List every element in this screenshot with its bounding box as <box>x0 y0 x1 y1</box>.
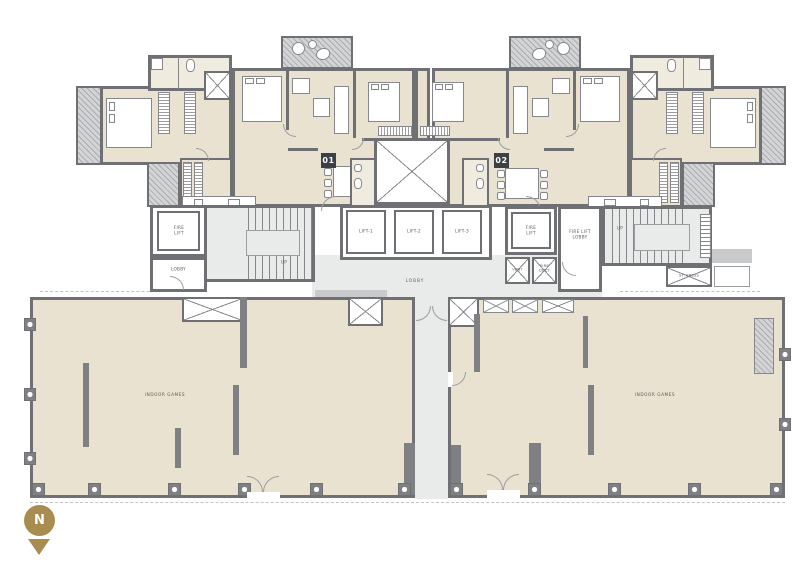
shaft <box>348 297 383 326</box>
basin <box>476 164 484 172</box>
column <box>310 483 323 496</box>
planter <box>308 40 317 49</box>
duct <box>483 299 509 313</box>
north-compass: N <box>24 505 55 536</box>
column <box>779 348 791 361</box>
pillow <box>109 102 115 111</box>
column <box>88 483 101 496</box>
hob <box>604 199 616 206</box>
hatch-strip <box>754 318 774 374</box>
main-lobby-label: LOBBY <box>394 278 436 284</box>
wardrobe <box>184 92 196 134</box>
planter <box>557 42 570 55</box>
balcony <box>76 86 102 165</box>
shaft <box>714 266 750 287</box>
wall <box>450 138 500 141</box>
door-gap <box>487 490 520 498</box>
chair <box>497 181 505 189</box>
duct <box>512 299 538 313</box>
pillow <box>381 84 389 90</box>
column <box>688 483 701 496</box>
vent-label: VENT <box>510 268 525 273</box>
wall-stub <box>233 385 239 455</box>
corridor <box>415 305 448 499</box>
chair <box>540 181 548 189</box>
wall <box>683 57 684 89</box>
dash-line <box>30 502 785 503</box>
chair <box>324 179 332 187</box>
duct <box>542 299 574 313</box>
column <box>528 483 541 496</box>
up-label: UP <box>271 260 296 266</box>
toilet <box>354 178 362 189</box>
ladder <box>700 214 711 258</box>
toilet <box>476 178 484 189</box>
dining-table <box>505 168 539 199</box>
wall <box>544 148 574 151</box>
wall <box>353 68 356 138</box>
lift-2: LIFT-2 <box>394 210 434 254</box>
north-arrow-icon <box>28 539 50 555</box>
stair-landing <box>634 224 690 251</box>
column <box>608 483 621 496</box>
column <box>168 483 181 496</box>
coffee-table <box>313 98 330 117</box>
fire-lift-lobby <box>558 206 602 292</box>
pillow <box>747 114 753 123</box>
lift-3: LIFT-3 <box>442 210 482 254</box>
utility-balcony <box>147 162 180 207</box>
wardrobe <box>692 92 704 134</box>
lift-machine-shaft <box>374 138 450 205</box>
fire-lift-lobby-label: FIRE LIFT LOBBY <box>565 229 596 240</box>
wall-stub <box>175 428 181 468</box>
north-label: N <box>34 513 45 528</box>
shaft <box>204 71 231 100</box>
wardrobe <box>666 92 678 134</box>
shaft <box>631 71 658 100</box>
pillow <box>583 78 592 84</box>
sofa <box>334 86 349 134</box>
up-label: UP <box>612 226 629 232</box>
door-gap <box>247 492 280 499</box>
column <box>32 483 45 496</box>
wall <box>286 68 289 130</box>
wardrobe <box>670 162 679 203</box>
wall-stub <box>583 316 588 368</box>
wall <box>573 68 576 130</box>
toilet <box>667 59 676 72</box>
planter <box>292 42 305 55</box>
column <box>24 318 36 331</box>
wall <box>412 68 418 138</box>
shaft <box>182 297 243 322</box>
fire-duct-label: FIRE DUCT <box>537 264 552 272</box>
shower <box>699 58 711 70</box>
balcony <box>760 86 786 165</box>
column <box>24 452 36 465</box>
stair-landing <box>246 230 300 256</box>
chair <box>324 168 332 176</box>
basin <box>354 164 362 172</box>
pillow <box>747 102 753 111</box>
room-label: INDOOR GAMES <box>123 392 207 398</box>
pillow <box>371 84 379 90</box>
column <box>450 483 463 496</box>
shower <box>151 58 163 70</box>
column <box>779 418 791 431</box>
armchair <box>292 78 310 94</box>
wall-stub <box>588 385 594 455</box>
unit-badge-02: 02 <box>494 153 509 168</box>
armchair <box>552 78 570 94</box>
sofa <box>513 86 528 134</box>
wall-stub <box>83 363 89 447</box>
dash-line <box>620 291 760 292</box>
chair <box>497 192 505 200</box>
chair <box>540 192 548 200</box>
column <box>770 483 783 496</box>
wall <box>506 68 509 138</box>
unit-badge-01: 01 <box>321 153 336 168</box>
wall <box>288 148 318 151</box>
chair <box>540 170 548 178</box>
floor-plan: 01 02 UP FIRE LIFT LOBBY LIFT-1 LIFT-2 L… <box>0 0 802 575</box>
room-label: INDOOR GAMES <box>613 392 697 398</box>
utility-balcony <box>682 162 715 207</box>
wall <box>178 57 179 89</box>
ledge <box>712 249 752 263</box>
toilet <box>186 59 195 72</box>
pillow <box>435 84 443 90</box>
wardrobe <box>378 126 412 136</box>
pillow <box>256 78 265 84</box>
wardrobe <box>158 92 170 134</box>
wall-stub <box>474 314 480 372</box>
pillow <box>445 84 453 90</box>
lobby-label: LOBBY <box>159 267 199 273</box>
planter <box>545 40 554 49</box>
pillow <box>594 78 603 84</box>
sink <box>640 199 649 206</box>
fire-lift-car: FIRE LIFT <box>511 212 551 249</box>
wardrobe <box>420 126 450 136</box>
coffee-table <box>532 98 549 117</box>
fire-lift-car: FIRE LIFT <box>157 211 200 251</box>
wall-stub <box>240 297 247 368</box>
chair <box>497 170 505 178</box>
st-press-label: ST. PRESS <box>675 274 703 279</box>
column <box>24 388 36 401</box>
pillow <box>245 78 254 84</box>
lift-1: LIFT-1 <box>346 210 386 254</box>
column <box>398 483 411 496</box>
pillow <box>109 114 115 123</box>
